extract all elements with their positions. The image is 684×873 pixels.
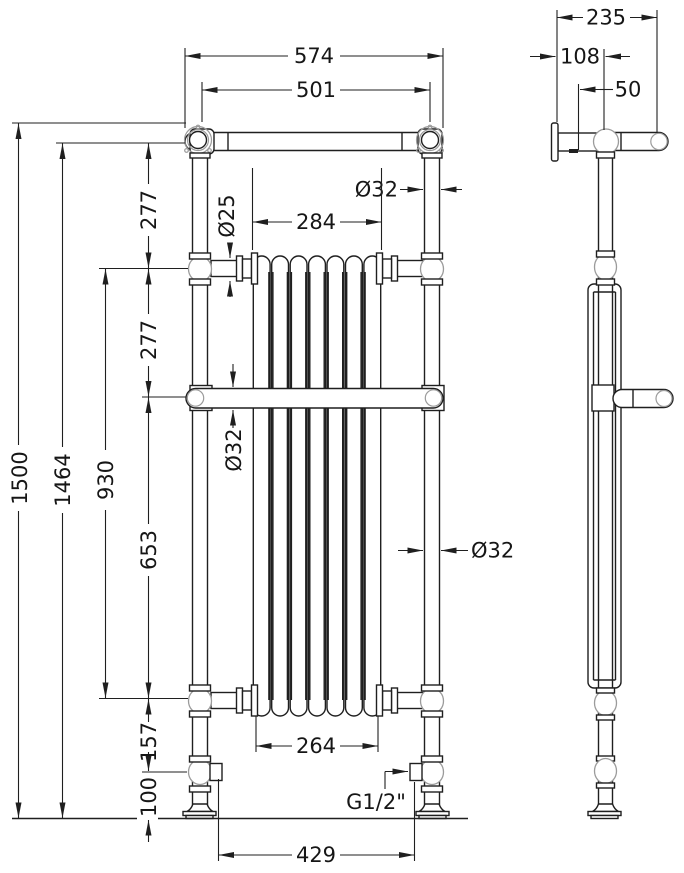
side-upper-ball <box>595 251 617 285</box>
dim-label-base-span: 429 <box>296 843 336 867</box>
dim-label-column-offset: 50 <box>615 78 642 102</box>
dim-column-diameter: Ø32 <box>398 539 514 563</box>
dim-connector-span: 930 <box>94 269 118 698</box>
middle-towel-bar <box>186 386 444 411</box>
dim-overall-height: 1500 <box>8 124 32 819</box>
side-top-assembly <box>552 123 669 161</box>
dim-label-bar-to-lower-connector: 653 <box>137 530 161 570</box>
dim-label-top-column-diameter: Ø32 <box>355 178 398 202</box>
extension-lines-left <box>12 123 188 772</box>
dim-height-to-rail: 1464 <box>51 144 75 819</box>
dim-connector-diameter: Ø25 <box>215 194 239 297</box>
dim-label-valve-thread: G1/2" <box>346 790 406 814</box>
dim-core-width-bottom: 264 <box>256 716 378 758</box>
dim-connector-to-bar: 277 <box>137 269 161 397</box>
dim-label-towel-bar-diameter: Ø32 <box>222 428 246 471</box>
bottom-valves <box>189 756 444 792</box>
dim-rail-to-connector: 277 <box>137 144 161 269</box>
dim-label-rail-to-connector: 277 <box>137 190 161 230</box>
radiator-technical-drawing-page: 574 501 Ø32 Ø25 284 <box>0 0 684 873</box>
dim-label-connector-to-bar: 277 <box>137 320 161 360</box>
dim-top-column-diameter: Ø32 <box>355 178 462 202</box>
left-foot <box>183 804 216 819</box>
dim-bar-to-lower-connector: 653 <box>137 398 161 699</box>
dim-label-core-width-bottom: 264 <box>296 734 336 758</box>
side-towel-bar <box>592 385 673 411</box>
dim-label-connector-span: 930 <box>94 460 118 500</box>
dim-label-overall-height: 1500 <box>8 451 32 504</box>
dim-towel-bar-diameter: Ø32 <box>222 364 246 472</box>
right-wall-flange <box>417 125 444 158</box>
dim-label-overall-width: 574 <box>294 44 334 68</box>
dim-valve-height: 100 <box>137 775 161 842</box>
dim-label-column-diameter: Ø32 <box>471 539 514 563</box>
dim-label-wall-to-column: 108 <box>560 45 600 69</box>
radiator-technical-drawing: 574 501 Ø32 Ø25 284 <box>0 0 684 873</box>
dim-valve-thread: G1/2" <box>346 772 408 815</box>
dim-overall-depth: 235 <box>557 6 657 134</box>
side-view <box>552 123 674 819</box>
dim-label-overall-depth: 235 <box>586 6 626 30</box>
radiator-core <box>253 256 380 716</box>
dim-label-lower-connector-to-valve: 157 <box>137 722 161 762</box>
top-rail <box>185 133 443 151</box>
dim-lower-connector-to-valve: 157 <box>137 699 161 771</box>
dim-label-height-to-rail: 1464 <box>51 453 75 506</box>
right-foot <box>416 804 449 819</box>
dim-label-core-width-top: 284 <box>296 210 336 234</box>
side-lower-assembly <box>588 688 621 819</box>
dim-label-connector-diameter: Ø25 <box>215 194 239 237</box>
dim-label-valve-height: 100 <box>137 777 161 817</box>
dim-label-rail-span: 501 <box>296 78 336 102</box>
dim-rail-span: 501 <box>202 78 430 122</box>
